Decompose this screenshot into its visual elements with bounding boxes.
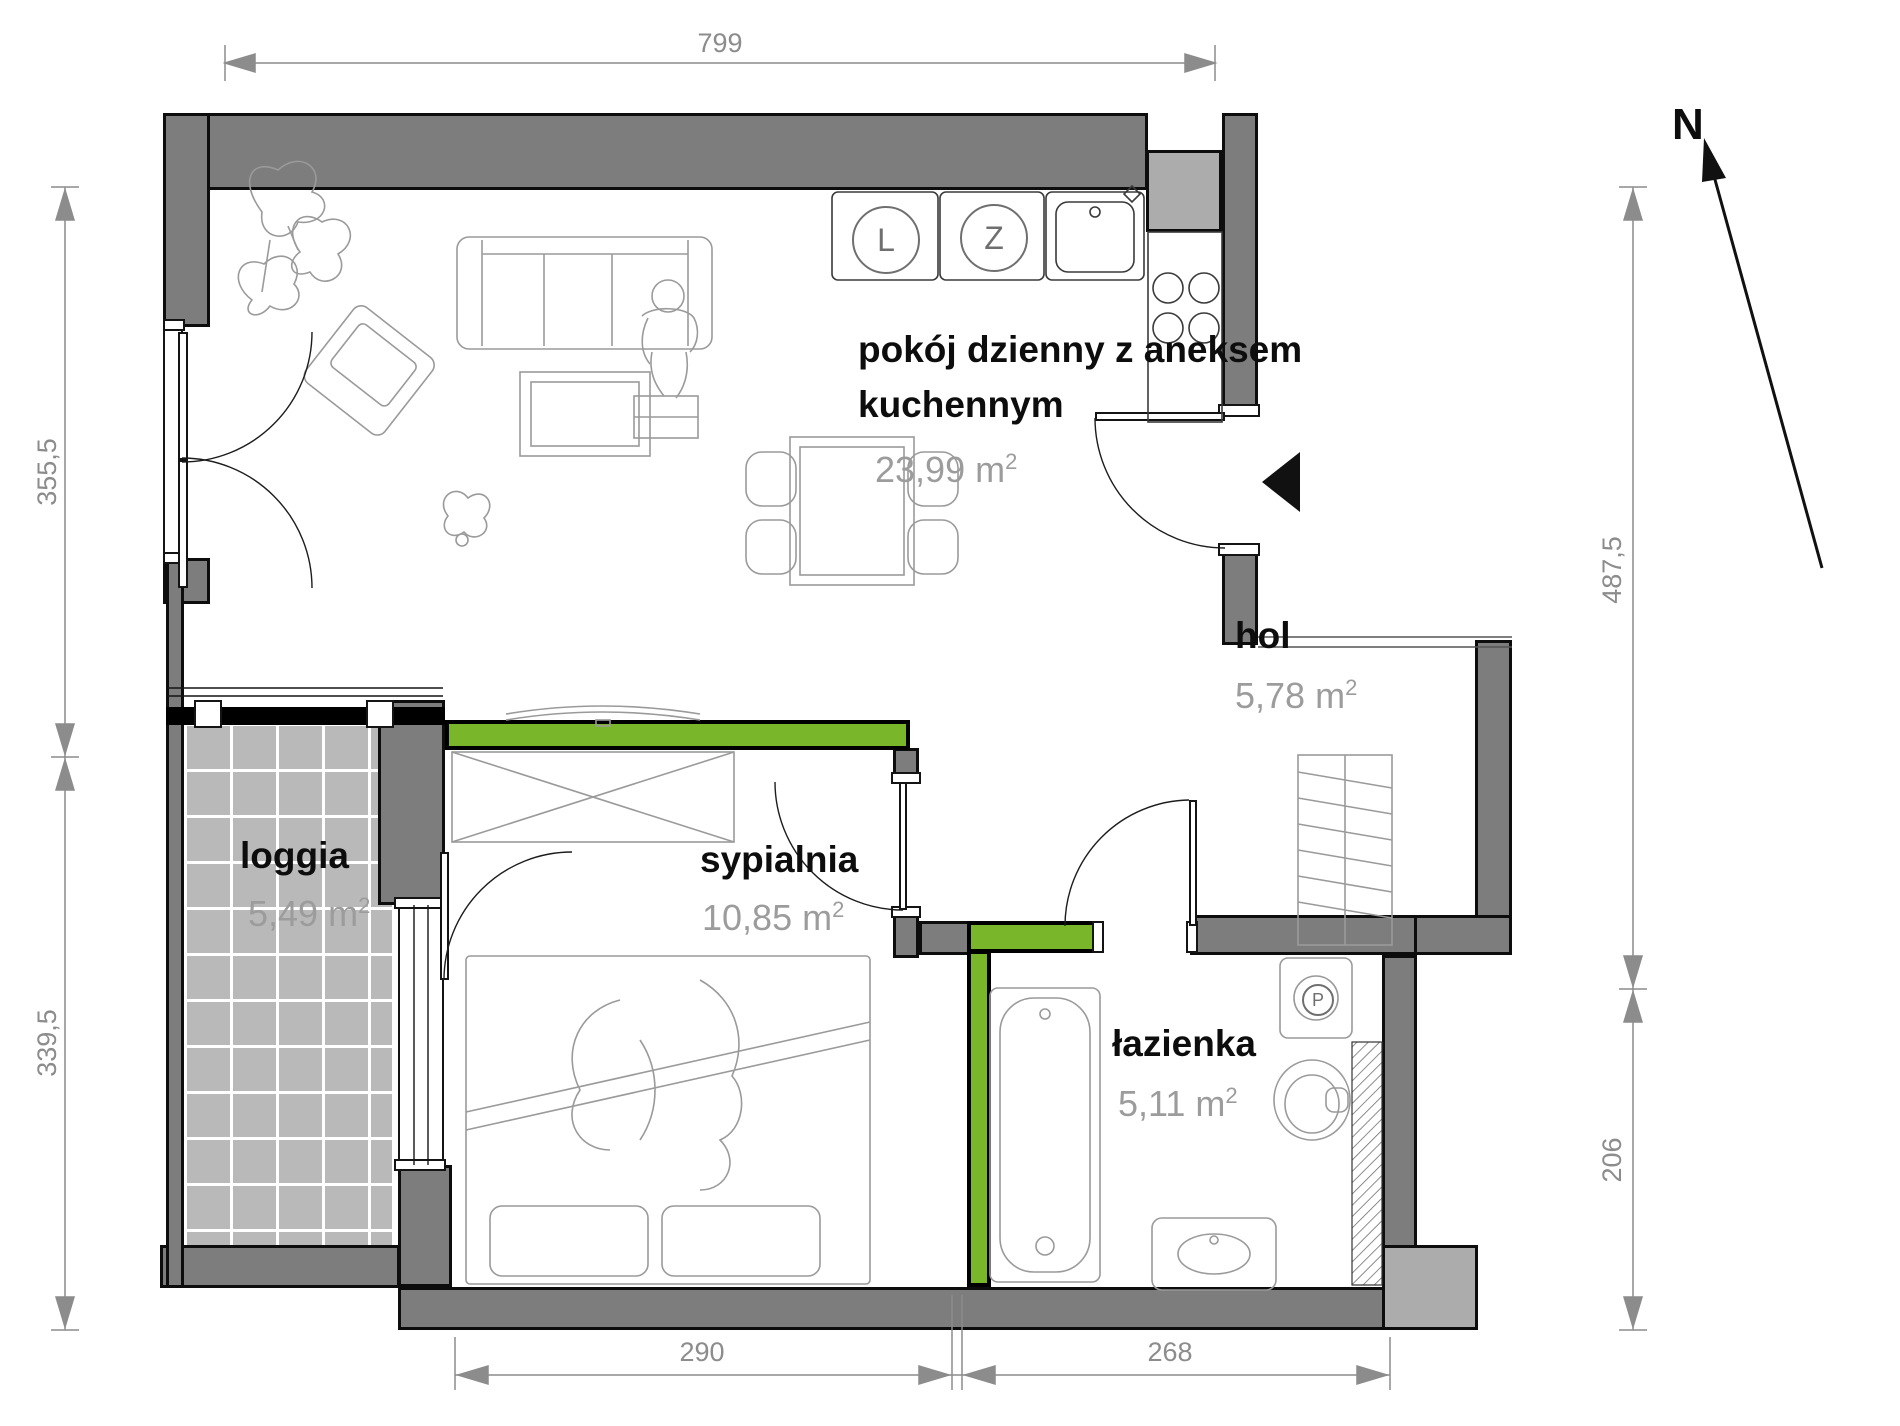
- fridge-icon: L: [852, 206, 920, 274]
- toilet-icon: [1274, 1060, 1350, 1140]
- entrance-arrow-icon: [1262, 452, 1300, 512]
- north-arrow-icon: [1702, 138, 1822, 568]
- wall-loggia-bottom: [160, 1245, 400, 1288]
- wall-right-bathroom: [1382, 955, 1417, 1287]
- person-on-sofa: [634, 280, 698, 438]
- bathtub-icon: [990, 988, 1100, 1282]
- bedroom-window-frame-bottom: [394, 1159, 446, 1171]
- dim-left-upper: 355,5: [32, 402, 62, 542]
- green-wall-bathroom-top: [967, 921, 1100, 953]
- small-plant-icon: [443, 491, 489, 546]
- floor-plan: L Z P pokój dzienny z aneksem kuchennym …: [0, 0, 1900, 1426]
- entrance-frame-bottom: [1218, 543, 1260, 556]
- green-wall-bedroom: [445, 720, 910, 750]
- wardrobe-icon: [452, 752, 734, 842]
- duct-shaft-block: [1146, 150, 1222, 232]
- bedroom-window: [398, 905, 444, 1165]
- room-label-loggia: loggia: [240, 828, 349, 883]
- room-label-hol: hol: [1235, 608, 1290, 663]
- room-label-lazienka: łazienka: [1112, 1016, 1256, 1071]
- bed: [466, 956, 870, 1284]
- dim-right-lower: 206: [1597, 1090, 1627, 1230]
- balcony-frame-top: [163, 319, 185, 331]
- room-area-loggia: 5,49 m2: [248, 886, 370, 934]
- hatched-wall-finish: [1352, 1042, 1382, 1285]
- room-label-living: pokój dzienny z aneksem kuchennym: [858, 322, 1328, 432]
- balcony-door-leaf-lower: [178, 460, 188, 588]
- wall-loggia-left: [166, 558, 184, 1288]
- bathroom-door-leaf: [1189, 800, 1197, 926]
- room-area-sypialnia: 10,85 m2: [702, 890, 844, 938]
- room-area-hol: 5,78 m2: [1235, 668, 1357, 716]
- loggia-tiled-floor: [184, 723, 392, 1245]
- washbasin-icon: [1152, 1218, 1276, 1290]
- bedroom-loggia-door-leaf: [440, 852, 449, 980]
- balcony-door-leaf-upper: [178, 332, 188, 460]
- room-area-living: 23,99 m2: [875, 442, 1017, 490]
- armchair: [300, 302, 438, 439]
- bedroom-window-frame-top: [394, 897, 446, 909]
- green-wall-bathroom-left: [967, 950, 991, 1287]
- wall-pier-loggia-bedroom: [378, 700, 445, 905]
- dim-top: 799: [650, 28, 790, 58]
- dim-left-lower: 339,5: [32, 973, 62, 1113]
- wall-right-hol: [1475, 640, 1512, 955]
- wall-top: [163, 113, 1148, 190]
- sofa: [457, 237, 712, 349]
- dim-bottom-left: 290: [632, 1337, 772, 1367]
- washer-letter-icon: P: [1302, 984, 1334, 1016]
- coffee-table: [520, 372, 650, 456]
- room-area-lazienka: 5,11 m2: [1118, 1076, 1238, 1124]
- dishwasher-icon: Z: [960, 204, 1028, 272]
- room-label-sypialnia: sypialnia: [700, 832, 858, 887]
- north-label: N: [1672, 100, 1704, 150]
- dim-right-upper: 487,5: [1597, 500, 1627, 640]
- bedroom-door-leaf: [899, 782, 907, 910]
- wall-bathroom-connector: [919, 921, 971, 955]
- wall-bottom: [398, 1287, 1417, 1330]
- wall-bedroom-southwest: [398, 1165, 452, 1287]
- parapet-frame-right: [366, 700, 394, 728]
- parapet-frame-left: [194, 700, 222, 728]
- wall-bathroom-top: [1190, 915, 1417, 955]
- corner-pillar-block: [1382, 1245, 1478, 1330]
- wall-left-upper: [163, 113, 210, 327]
- dim-bottom-right: 268: [1100, 1337, 1240, 1367]
- bathroom-door-frame-left: [1092, 921, 1104, 953]
